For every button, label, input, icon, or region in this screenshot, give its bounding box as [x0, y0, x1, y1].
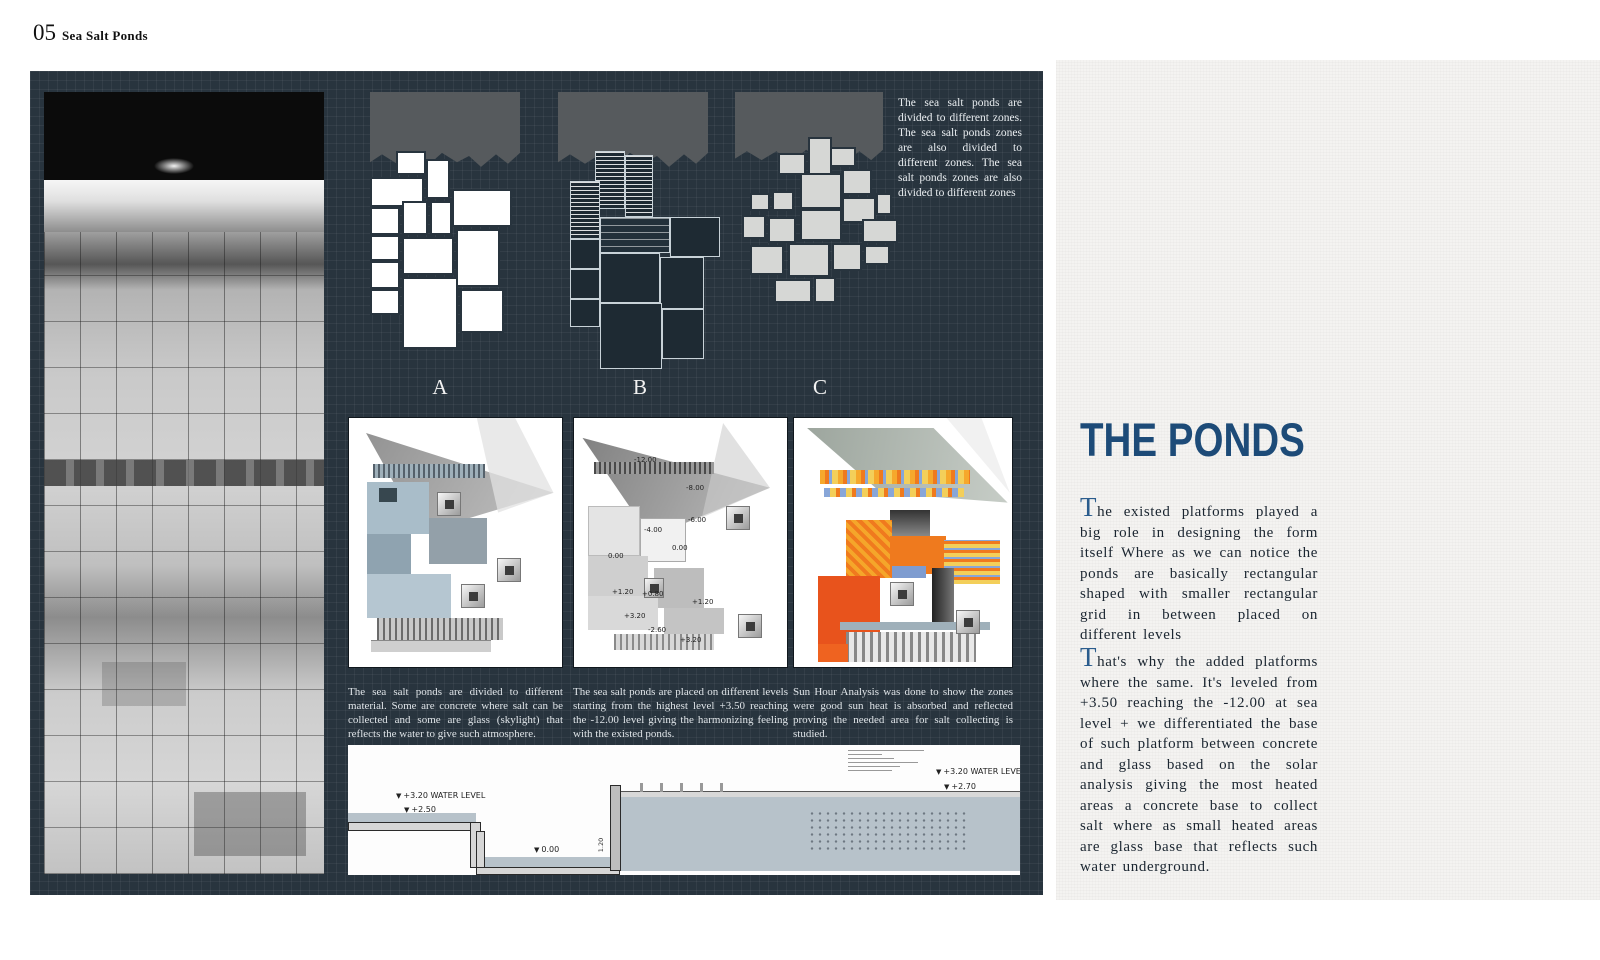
- concrete-deck: [348, 822, 478, 831]
- outline-zone-block: [570, 299, 600, 327]
- ribbed-band: [377, 618, 503, 640]
- glass-block: [367, 574, 451, 618]
- skylight-pyramid: [890, 582, 914, 606]
- level-label: +0.80: [642, 590, 663, 598]
- shaded-block: [890, 510, 930, 536]
- paragraph-text: hat's why the added platforms where the …: [1080, 654, 1318, 875]
- post: [720, 783, 723, 792]
- skylight-pyramid: [726, 506, 750, 530]
- zone-block: [774, 279, 812, 303]
- zone-block: [460, 289, 504, 333]
- zone-diagram-b: B: [540, 89, 740, 379]
- window-block: [379, 488, 397, 502]
- caption-material: The sea salt ponds are divided to differ…: [348, 685, 563, 741]
- level-label: +1.20: [612, 588, 633, 596]
- level-label: +3.20: [680, 636, 701, 644]
- skylight-pyramid: [497, 558, 521, 582]
- zone-block: [862, 219, 898, 243]
- level-label: +3.20: [624, 612, 645, 620]
- zone-block: [402, 201, 428, 235]
- section-drawing: +3.20 WATER LEVEL +2.50 0.00 1.20 1.20 +…: [348, 745, 1020, 875]
- skylight-pyramid: [461, 584, 485, 608]
- hot-zone-block: [846, 520, 892, 578]
- skylight-pyramid: [738, 614, 762, 638]
- outline-zone-block: [662, 309, 704, 359]
- salt-pond-parcels: [44, 232, 324, 874]
- glass-block: [367, 482, 429, 534]
- outline-zone-block: [570, 239, 600, 269]
- zone-block: [750, 245, 784, 275]
- skylight-pyramid: [437, 492, 461, 516]
- dark-pond-band: [44, 460, 324, 486]
- caption-levels: The sea salt ponds are placed on differe…: [573, 685, 788, 741]
- zone-block: [772, 191, 794, 211]
- zone-block: [800, 209, 842, 241]
- portfolio-page: 05Sea Salt Ponds: [0, 0, 1600, 960]
- post: [680, 783, 683, 792]
- level-label: -8.00: [686, 484, 704, 492]
- lined-zone-block: [600, 217, 670, 253]
- level-label: -4.00: [644, 526, 662, 534]
- render-material: [348, 417, 563, 668]
- outline-zone-block: [600, 253, 660, 303]
- zones-paragraph: The sea salt ponds are divided to differ…: [898, 96, 1022, 201]
- zone-block: [800, 173, 842, 209]
- page-title: Sea Salt Ponds: [62, 28, 148, 43]
- zone-block: [430, 201, 452, 235]
- shoreline-surf: [44, 180, 324, 232]
- level-label: -2.60: [648, 626, 666, 634]
- level-label: 0.00: [534, 845, 559, 854]
- page-number: 05: [33, 20, 56, 45]
- render-levels: -12.00 -8.00 -6.00 -4.00 0.00 0.00 +1.20…: [573, 417, 788, 668]
- level-label: +2.70: [944, 782, 976, 791]
- tall-wall: [610, 785, 621, 871]
- dim-label: 1.20: [597, 838, 605, 852]
- zone-block: [768, 217, 796, 243]
- zone-block: [778, 153, 806, 175]
- zone-block: [842, 169, 872, 195]
- zone-block: [864, 245, 890, 265]
- zone-block: [396, 151, 426, 175]
- pond-floor: [476, 867, 620, 875]
- zone-block: [370, 207, 400, 235]
- dropcap: T: [1080, 492, 1097, 522]
- post: [660, 783, 663, 792]
- pond-wall: [476, 831, 485, 871]
- cool-zone-block: [892, 566, 926, 578]
- surf-highlight: [154, 158, 194, 174]
- sediment-speckle: [808, 810, 968, 850]
- article-paragraph-1: The existed platforms played a big role …: [1080, 497, 1318, 646]
- zone-block: [876, 193, 892, 215]
- article-title: THE PONDS: [1080, 412, 1305, 467]
- zone-block: [832, 243, 862, 271]
- zone-block: [402, 277, 458, 349]
- dark-patch: [102, 662, 186, 706]
- ribbed-band: [846, 632, 976, 662]
- concrete-block: [429, 518, 487, 564]
- heat-band: [820, 470, 970, 484]
- pond-water: [485, 857, 611, 867]
- zone-block: [808, 137, 832, 177]
- skylight-pyramid: [956, 610, 980, 634]
- render-sun-analysis: [793, 417, 1013, 668]
- glass-block: [367, 534, 411, 574]
- post: [700, 783, 703, 792]
- zone-block: [370, 261, 400, 289]
- zone-block: [814, 277, 836, 303]
- level-label: +1.20: [692, 598, 713, 606]
- presentation-board: A B: [30, 71, 1043, 895]
- outline-zone-block: [670, 217, 720, 257]
- outline-zone-block: [600, 303, 662, 369]
- hatched-zone-block: [570, 181, 600, 239]
- article-paragraph-2: That's why the added platforms where the…: [1080, 647, 1318, 878]
- dark-patch: [194, 792, 306, 856]
- level-label: -6.00: [688, 516, 706, 524]
- zone-block: [750, 193, 770, 211]
- level-label: 0.00: [608, 552, 624, 560]
- paragraph-text: he existed platforms played a big role i…: [1080, 504, 1318, 643]
- page-header: 05Sea Salt Ponds: [33, 20, 148, 46]
- water-level-label: +3.20 WATER LEVEL: [396, 791, 485, 800]
- diagram-label-a: A: [340, 375, 540, 400]
- heat-band: [824, 488, 964, 497]
- outline-zone-block: [660, 257, 704, 309]
- zone-block: [370, 235, 400, 261]
- level-label: -12.00: [634, 456, 657, 464]
- zone-block: [456, 229, 500, 287]
- diagram-label-c: C: [720, 375, 920, 400]
- outline-zone-block: [570, 269, 600, 299]
- water-band: [348, 813, 476, 822]
- level-label: +2.50: [404, 805, 436, 814]
- step-strip: [371, 640, 491, 652]
- zone-diagram-c: C: [720, 89, 920, 379]
- zone-block: [452, 189, 512, 227]
- zone-block: [742, 215, 766, 239]
- platform-block: [588, 506, 640, 556]
- zone-diagram-a: A: [340, 89, 540, 379]
- caption-sun-analysis: Sun Hour Analysis was done to show the z…: [793, 685, 1013, 741]
- article-panel: THE PONDS The existed platforms played a…: [1056, 60, 1600, 900]
- material-legend-lines: [848, 750, 928, 774]
- zone-block: [426, 159, 450, 199]
- platform-block: [664, 608, 724, 634]
- dropcap: T: [1080, 642, 1097, 672]
- shaded-block: [932, 568, 954, 628]
- zone-block: [788, 243, 830, 277]
- zone-block: [830, 147, 856, 167]
- platform-block: [588, 596, 658, 630]
- zone-block: [370, 289, 400, 315]
- water-level-label: +3.20 WATER LEVEL: [936, 767, 1020, 776]
- zone-block: [402, 237, 454, 275]
- hot-zone-block: [818, 644, 848, 662]
- aerial-photo: [44, 92, 324, 874]
- diagram-label-b: B: [540, 375, 740, 400]
- ribbed-strip: [373, 464, 485, 478]
- level-label: 0.00: [672, 544, 688, 552]
- post: [640, 783, 643, 792]
- hatched-zone-block: [625, 155, 653, 217]
